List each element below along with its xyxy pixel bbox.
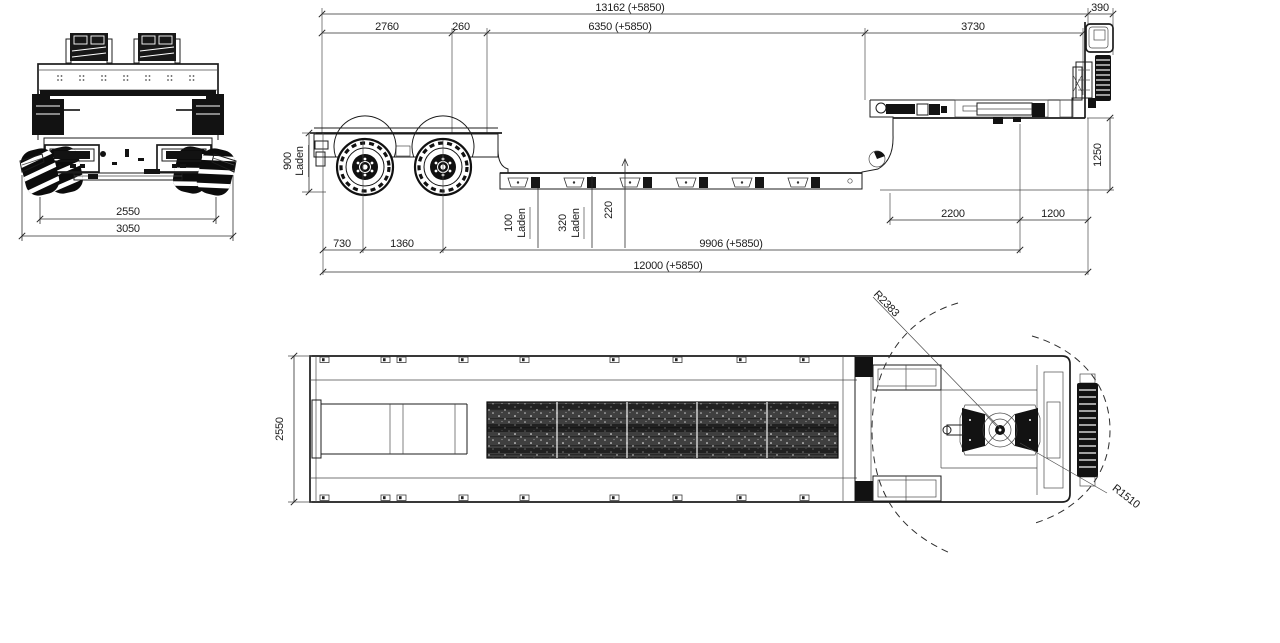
turning-radius-front-label: R1510: [1110, 482, 1142, 511]
rear-ramps: [66, 33, 180, 64]
kingpin: [993, 117, 1003, 124]
side-kingpin-height-dimension: 1250: [1087, 115, 1114, 193]
dim-gooseneck-to-kingpin: 2200: [941, 208, 965, 220]
top-deck-width-label: 2550: [274, 417, 286, 441]
side-gooseneck: [862, 22, 1114, 190]
dim-axle-spacing: 1360: [390, 238, 414, 250]
dim-well-length: 6350 (+5850): [588, 21, 651, 33]
dim-kingpin-to-front: 1200: [1041, 208, 1065, 220]
rear-overall-width-label: 3050: [116, 223, 140, 235]
turning-radius-rear-label: R2383: [871, 288, 902, 319]
side-rear-height-dimension: 900 Laden: [282, 130, 326, 195]
side-low-deck: [500, 173, 862, 189]
dim-deck-height: 320: [557, 214, 569, 232]
dim-overall-length: 12000 (+5850): [633, 260, 702, 272]
dim-total-with-extension: 13162 (+5850): [595, 2, 664, 14]
dim-rear-deck-length: 2760: [375, 21, 399, 33]
trailer-technical-drawing: 2550 3050 13162 (+5850) 390 2760 260 635…: [0, 0, 1280, 643]
rear-deck: [38, 64, 218, 96]
top-gooseneck: [843, 356, 1098, 502]
spare-wheel-top: [1077, 374, 1098, 486]
rear-view: 2550 3050: [15, 33, 241, 241]
dim-step-height: 220: [603, 201, 615, 219]
headboard: [1086, 24, 1113, 52]
side-view: 13162 (+5850) 390 2760 260 6350 (+5850) …: [282, 2, 1116, 275]
dim-fifth-wheel-height: 1250: [1092, 143, 1104, 167]
dim-rear-deck-height-laden: Laden: [294, 146, 306, 176]
technical-drawing-page: 2550 3050 13162 (+5850) 390 2760 260 635…: [0, 0, 1280, 643]
side-top-dimensions: 13162 (+5850) 390 2760 260 6350 (+5850) …: [319, 2, 1116, 133]
dim-ground-clearance-laden: Laden: [516, 208, 528, 238]
top-deck-panels: [487, 402, 838, 458]
top-width-dimension: 2550: [274, 353, 312, 505]
dim-axle-to-kingpin: 9906 (+5850): [699, 238, 762, 250]
rear-track-width-label: 2550: [116, 206, 140, 218]
top-view: R2383 R1510 2550: [274, 288, 1142, 553]
rear-axle-wheel-1: [337, 139, 393, 195]
dim-rear-overhang: 730: [333, 238, 351, 250]
dim-ground-clearance: 100: [503, 214, 515, 232]
top-rear-spine: [312, 400, 467, 458]
side-rear-bogie: [310, 116, 508, 195]
dim-deck-height-laden: Laden: [570, 208, 582, 238]
dim-front-overhang: 390: [1091, 2, 1109, 14]
dim-gooseneck-length: 3730: [961, 21, 985, 33]
dim-rear-deck-height: 900: [282, 152, 294, 170]
dim-gap: 260: [452, 21, 470, 33]
fifth-wheel-coupling: [943, 405, 1040, 455]
spare-wheel-side: [1076, 55, 1111, 101]
rear-suspension: [32, 94, 224, 140]
